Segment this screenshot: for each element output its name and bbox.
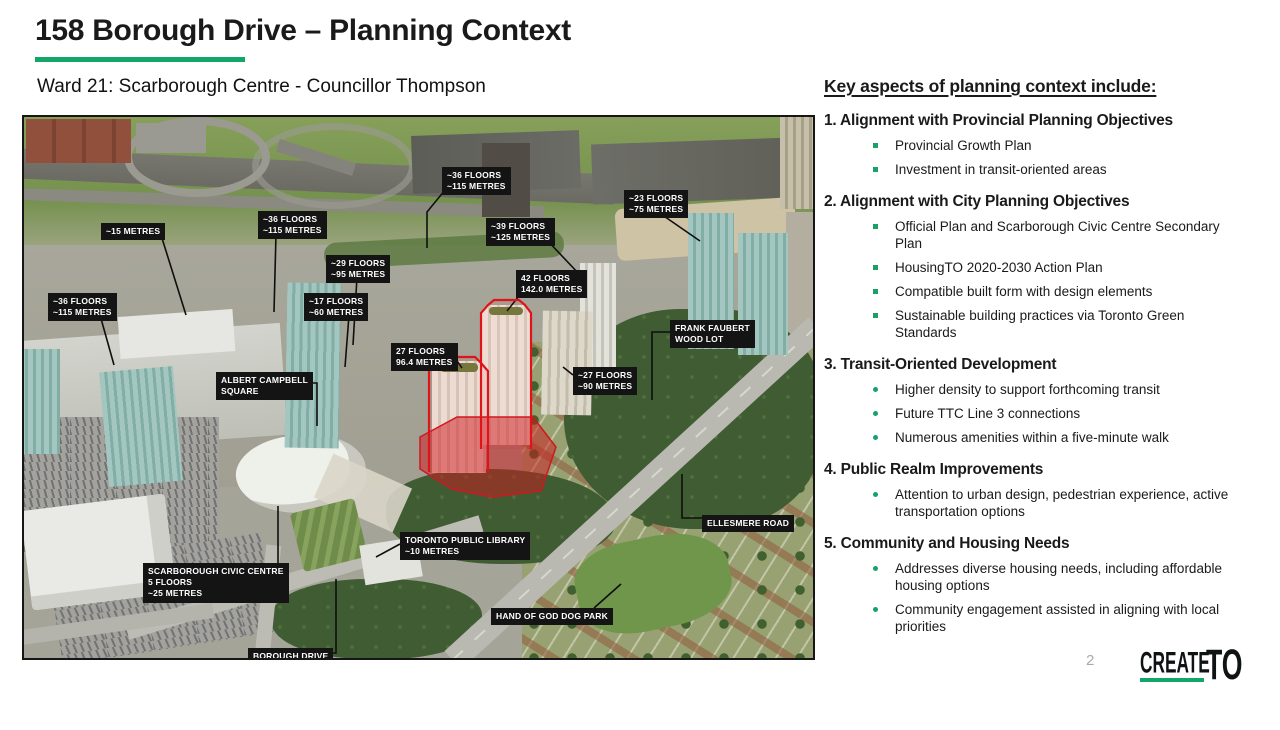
slide: 158 Borough Drive – Planning Context War… <box>0 0 1280 730</box>
bullet-item: Sustainable building practices via Toron… <box>824 307 1248 341</box>
bullet-item: Official Plan and Scarborough Civic Cent… <box>824 218 1248 252</box>
page-title: 158 Borough Drive – Planning Context <box>35 14 571 48</box>
title-accent-bar <box>35 57 245 62</box>
aerial-photo: ~15 METRES~36 FLOORS ~115 METRES~29 FLOO… <box>22 115 815 660</box>
section-items: Provincial Growth PlanInvestment in tran… <box>824 137 1248 178</box>
photo-proposed-tower-west <box>432 361 486 473</box>
section-items: Addresses diverse housing needs, includi… <box>824 560 1248 635</box>
section-items: Attention to urban design, pedestrian ex… <box>824 486 1248 520</box>
map-label: ALBERT CAMPBELL SQUARE <box>216 372 313 400</box>
ward-subtitle: Ward 21: Scarborough Centre - Councillor… <box>37 76 486 98</box>
bullet-item: Addresses diverse housing needs, includi… <box>824 560 1248 594</box>
map-label: ~36 FLOORS ~115 METRES <box>48 293 117 321</box>
bullet-item: HousingTO 2020-2030 Action Plan <box>824 259 1248 276</box>
bullet-item: Compatible built form with design elemen… <box>824 283 1248 300</box>
section-title: 1. Alignment with Provincial Planning Ob… <box>824 112 1248 130</box>
map-label: ~27 FLOORS ~90 METRES <box>573 367 637 395</box>
section-title: 4. Public Realm Improvements <box>824 461 1248 479</box>
key-aspects-heading: Key aspects of planning context include: <box>824 76 1248 97</box>
page-number: 2 <box>1086 652 1094 669</box>
photo-tower <box>22 349 60 454</box>
photo-green-roof <box>489 307 523 315</box>
photo-mall <box>118 309 236 359</box>
map-label: FRANK FAUBERT WOOD LOT <box>670 320 755 348</box>
photo-buildings <box>26 119 131 163</box>
logo-create-text: CREATE <box>1140 647 1210 681</box>
map-label: ELLESMERE ROAD <box>702 515 794 532</box>
map-label: 27 FLOORS 96.4 METRES <box>391 343 458 371</box>
photo-tower <box>541 311 593 416</box>
section-title: 5. Community and Housing Needs <box>824 535 1248 553</box>
photo-tower <box>780 117 815 209</box>
bullet-item: Future TTC Line 3 connections <box>824 405 1248 422</box>
map-label: ~17 FLOORS ~60 METRES <box>304 293 368 321</box>
photo-buildings <box>591 138 793 205</box>
map-label: HAND OF GOD DOG PARK <box>491 608 613 625</box>
bullet-item: Investment in transit-oriented areas <box>824 161 1248 178</box>
map-label: 42 FLOORS 142.0 METRES <box>516 270 587 298</box>
createto-logo: CREATE TO <box>1140 642 1242 684</box>
logo-to-text: TO <box>1206 640 1243 690</box>
bullet-item: Community engagement assisted in alignin… <box>824 601 1248 635</box>
section-items: Official Plan and Scarborough Civic Cent… <box>824 218 1248 341</box>
map-label: ~39 FLOORS ~125 METRES <box>486 218 555 246</box>
section-title: 2. Alignment with City Planning Objectiv… <box>824 193 1248 211</box>
section-items: Higher density to support forthcoming tr… <box>824 381 1248 446</box>
logo-accent-bar <box>1140 678 1204 682</box>
map-label: TORONTO PUBLIC LIBRARY ~10 METRES <box>400 532 530 560</box>
map-label: ~23 FLOORS ~75 METRES <box>624 190 688 218</box>
map-label: ~36 FLOORS ~115 METRES <box>258 211 327 239</box>
section-title: 3. Transit-Oriented Development <box>824 356 1248 374</box>
photo-tower <box>99 366 183 487</box>
map-label: BOROUGH DRIVE <box>248 648 333 660</box>
bullet-item: Numerous amenities within a five-minute … <box>824 429 1248 446</box>
bullet-item: Attention to urban design, pedestrian ex… <box>824 486 1248 520</box>
bullet-item: Higher density to support forthcoming tr… <box>824 381 1248 398</box>
key-aspects-sections: 1. Alignment with Provincial Planning Ob… <box>824 112 1248 635</box>
map-label: ~29 FLOORS ~95 METRES <box>326 255 390 283</box>
photo-proposed-tower-east <box>482 305 530 445</box>
bullet-item: Provincial Growth Plan <box>824 137 1248 154</box>
map-label: SCARBOROUGH CIVIC CENTRE 5 FLOORS ~25 ME… <box>143 563 289 603</box>
key-aspects-panel: Key aspects of planning context include:… <box>824 76 1248 635</box>
map-label: ~36 FLOORS ~115 METRES <box>442 167 511 195</box>
photo-buildings <box>136 123 206 153</box>
map-label: ~15 METRES <box>101 223 165 240</box>
